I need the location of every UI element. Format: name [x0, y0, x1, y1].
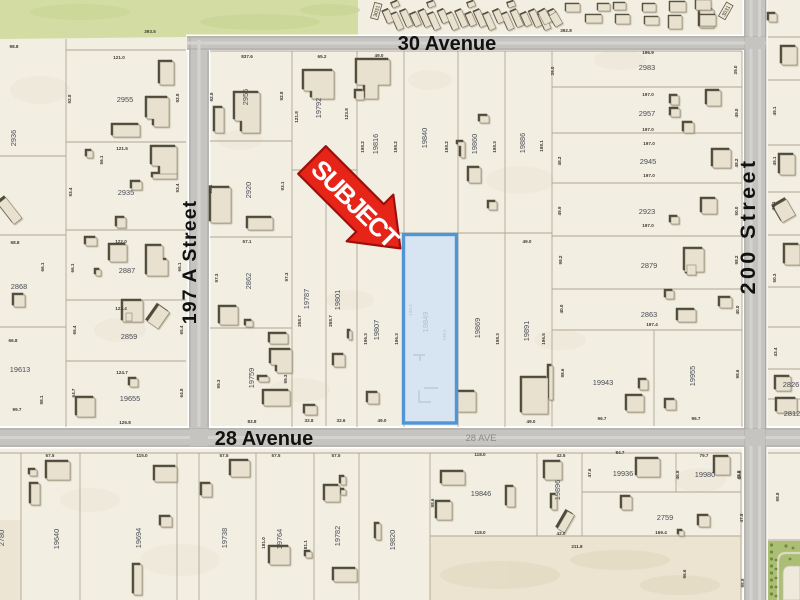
- svg-text:79.7: 79.7: [700, 453, 709, 458]
- svg-text:19655: 19655: [120, 394, 141, 403]
- svg-text:99.7: 99.7: [13, 407, 22, 412]
- svg-text:98.1: 98.1: [39, 395, 44, 404]
- svg-text:65.4: 65.4: [179, 325, 184, 334]
- svg-text:93.1: 93.1: [280, 181, 285, 190]
- svg-text:42.0: 42.0: [557, 531, 566, 536]
- svg-text:58.8: 58.8: [11, 240, 20, 245]
- svg-text:197.0: 197.0: [643, 141, 655, 146]
- svg-text:49.0: 49.0: [523, 239, 532, 244]
- svg-text:19759: 19759: [247, 368, 256, 389]
- svg-text:66.1: 66.1: [40, 262, 45, 271]
- svg-text:84.7: 84.7: [616, 450, 625, 455]
- svg-text:121.5: 121.5: [116, 146, 128, 151]
- svg-text:196.5: 196.5: [541, 333, 546, 345]
- svg-text:211.8: 211.8: [571, 544, 583, 549]
- svg-text:181.0: 181.0: [261, 537, 266, 549]
- svg-text:124.7: 124.7: [116, 370, 128, 375]
- svg-text:198.3: 198.3: [408, 304, 413, 316]
- svg-text:2936: 2936: [9, 130, 18, 146]
- svg-text:123.4: 123.4: [115, 306, 127, 311]
- svg-text:2957: 2957: [639, 109, 655, 118]
- svg-text:121.0: 121.0: [113, 55, 125, 60]
- svg-text:57.5: 57.5: [220, 453, 229, 458]
- svg-text:198.2: 198.2: [360, 141, 365, 153]
- svg-text:49.1: 49.1: [771, 201, 776, 210]
- svg-text:2955: 2955: [117, 95, 133, 104]
- svg-text:96.7: 96.7: [692, 416, 701, 421]
- svg-text:93.4: 93.4: [68, 187, 73, 196]
- svg-text:2862: 2862: [244, 273, 253, 289]
- svg-text:197.0: 197.0: [642, 92, 654, 97]
- svg-text:64.7: 64.7: [71, 388, 76, 397]
- svg-text:118.0: 118.0: [474, 452, 486, 457]
- svg-text:56.1: 56.1: [99, 155, 104, 164]
- svg-text:123.8: 123.8: [344, 108, 349, 120]
- svg-text:19849: 19849: [421, 312, 430, 333]
- svg-text:57.5: 57.5: [332, 453, 341, 458]
- svg-text:98.8: 98.8: [775, 492, 780, 501]
- svg-text:32.6: 32.6: [337, 418, 346, 423]
- svg-text:198.3: 198.3: [495, 333, 500, 345]
- svg-text:2780: 2780: [0, 530, 6, 546]
- svg-text:47.6: 47.6: [587, 468, 592, 477]
- svg-text:196.9: 196.9: [642, 50, 654, 55]
- svg-text:19846: 19846: [471, 489, 492, 498]
- svg-text:19869: 19869: [473, 318, 482, 339]
- svg-text:2887: 2887: [119, 266, 135, 275]
- svg-text:258.7: 258.7: [297, 315, 302, 327]
- svg-text:57.5: 57.5: [46, 453, 55, 458]
- svg-text:2935: 2935: [118, 188, 134, 197]
- svg-text:43.4: 43.4: [773, 347, 778, 356]
- svg-text:196.3: 196.3: [363, 333, 368, 345]
- svg-text:197.0: 197.0: [642, 127, 654, 132]
- svg-text:48.2: 48.2: [557, 156, 562, 165]
- svg-text:118.0: 118.0: [474, 530, 486, 535]
- svg-text:49.1: 49.1: [772, 156, 777, 165]
- svg-text:97.3: 97.3: [284, 272, 289, 281]
- svg-text:197.4: 197.4: [646, 322, 658, 327]
- svg-text:96.6: 96.6: [682, 569, 687, 578]
- svg-text:40.0: 40.0: [559, 304, 564, 313]
- svg-text:197 A Street: 197 A Street: [179, 200, 201, 324]
- svg-text:200 Street: 200 Street: [736, 158, 760, 295]
- svg-text:93.4: 93.4: [175, 183, 180, 192]
- svg-text:96.7: 96.7: [598, 416, 607, 421]
- svg-text:19886: 19886: [518, 133, 527, 154]
- svg-text:19943: 19943: [593, 378, 614, 387]
- svg-text:2983: 2983: [639, 63, 655, 72]
- svg-text:32.8: 32.8: [305, 418, 314, 423]
- svg-text:122.0: 122.0: [115, 239, 127, 244]
- svg-text:2945: 2945: [640, 157, 656, 166]
- svg-text:393.5: 393.5: [144, 29, 156, 34]
- svg-text:40.0: 40.0: [735, 305, 740, 314]
- svg-text:2920: 2920: [244, 182, 253, 198]
- svg-text:57.5: 57.5: [272, 453, 281, 458]
- svg-text:2863: 2863: [641, 310, 657, 319]
- svg-text:196.3: 196.3: [394, 333, 399, 345]
- svg-text:181.1: 181.1: [303, 540, 308, 552]
- svg-text:197.0: 197.0: [643, 173, 655, 178]
- svg-text:19640: 19640: [52, 529, 61, 550]
- svg-text:19738: 19738: [220, 528, 229, 549]
- svg-text:98.6: 98.6: [560, 368, 565, 377]
- svg-text:19782: 19782: [333, 526, 342, 547]
- svg-text:50.3: 50.3: [772, 273, 777, 282]
- svg-text:98.2: 98.2: [558, 255, 563, 264]
- svg-text:65.4: 65.4: [72, 325, 77, 334]
- svg-text:46.8: 46.8: [675, 470, 680, 479]
- svg-text:19816: 19816: [371, 134, 380, 155]
- svg-text:837.6: 837.6: [241, 54, 253, 59]
- svg-text:115.0: 115.0: [136, 453, 148, 458]
- svg-text:92.8: 92.8: [175, 93, 180, 102]
- svg-text:198.2: 198.2: [444, 141, 449, 153]
- svg-text:258.7: 258.7: [328, 315, 333, 327]
- svg-text:19840: 19840: [420, 128, 429, 149]
- svg-text:121.8: 121.8: [294, 111, 299, 123]
- svg-text:65.2: 65.2: [318, 54, 327, 59]
- svg-text:98.6: 98.6: [735, 369, 740, 378]
- svg-text:198.1: 198.1: [539, 140, 544, 152]
- svg-text:2759: 2759: [657, 513, 673, 522]
- svg-text:198.2: 198.2: [393, 141, 398, 153]
- svg-text:92.8: 92.8: [209, 92, 214, 101]
- svg-text:169.4: 169.4: [655, 530, 667, 535]
- svg-text:197.0: 197.0: [642, 223, 654, 228]
- svg-text:19860: 19860: [470, 134, 479, 155]
- svg-text:98.8: 98.8: [740, 578, 745, 587]
- svg-text:92.8: 92.8: [279, 91, 284, 100]
- svg-text:2812: 2812: [784, 409, 800, 418]
- svg-text:2956: 2956: [241, 89, 250, 105]
- svg-text:49.9: 49.9: [557, 206, 562, 215]
- svg-text:19955: 19955: [688, 366, 697, 387]
- svg-text:198.3: 198.3: [492, 141, 497, 153]
- svg-text:2859: 2859: [121, 332, 137, 341]
- svg-text:28 AVE: 28 AVE: [466, 433, 497, 444]
- svg-text:49.0: 49.0: [734, 108, 739, 117]
- svg-text:66.1: 66.1: [70, 263, 75, 272]
- svg-text:64.8: 64.8: [179, 388, 184, 397]
- svg-text:19807: 19807: [372, 320, 381, 341]
- svg-text:19792: 19792: [314, 98, 323, 119]
- svg-text:66.8: 66.8: [9, 338, 18, 343]
- svg-text:19891: 19891: [522, 321, 531, 342]
- svg-text:47.8: 47.8: [739, 513, 744, 522]
- svg-text:30 Avenue: 30 Avenue: [398, 33, 497, 55]
- svg-text:98.6: 98.6: [430, 498, 435, 507]
- svg-text:49.0: 49.0: [375, 53, 384, 58]
- svg-text:48.8: 48.8: [736, 470, 741, 479]
- svg-text:19980: 19980: [695, 470, 716, 479]
- svg-text:2879: 2879: [641, 261, 657, 270]
- svg-text:198.4: 198.4: [442, 329, 447, 341]
- svg-text:126.8: 126.8: [119, 420, 131, 425]
- svg-text:392.8: 392.8: [560, 28, 572, 33]
- svg-text:39.0: 39.0: [733, 65, 738, 74]
- svg-text:93.1: 93.1: [208, 184, 213, 193]
- svg-text:39.0: 39.0: [550, 66, 555, 75]
- svg-text:49.0: 49.0: [378, 418, 387, 423]
- svg-text:97.3: 97.3: [214, 273, 219, 282]
- svg-text:19896: 19896: [553, 480, 562, 501]
- svg-text:98.8: 98.8: [10, 44, 19, 49]
- svg-text:42.5: 42.5: [557, 453, 566, 458]
- svg-text:49.1: 49.1: [772, 106, 777, 115]
- svg-text:19801: 19801: [333, 290, 342, 311]
- svg-text:19820: 19820: [388, 530, 397, 551]
- svg-text:83.8: 83.8: [248, 419, 257, 424]
- svg-text:2868: 2868: [11, 282, 27, 291]
- svg-text:19613: 19613: [10, 365, 31, 374]
- svg-text:92.8: 92.8: [67, 94, 72, 103]
- svg-text:28 Avenue: 28 Avenue: [215, 428, 314, 450]
- svg-text:19764: 19764: [275, 529, 284, 550]
- svg-text:49.0: 49.0: [527, 419, 536, 424]
- svg-text:99.3: 99.3: [283, 374, 288, 383]
- svg-text:19694: 19694: [134, 528, 143, 549]
- svg-text:99.3: 99.3: [216, 379, 221, 388]
- svg-text:19936: 19936: [613, 469, 634, 478]
- svg-text:57.1: 57.1: [243, 239, 252, 244]
- svg-text:19787: 19787: [302, 289, 311, 310]
- svg-text:2826: 2826: [783, 380, 799, 389]
- svg-text:2923: 2923: [639, 207, 655, 216]
